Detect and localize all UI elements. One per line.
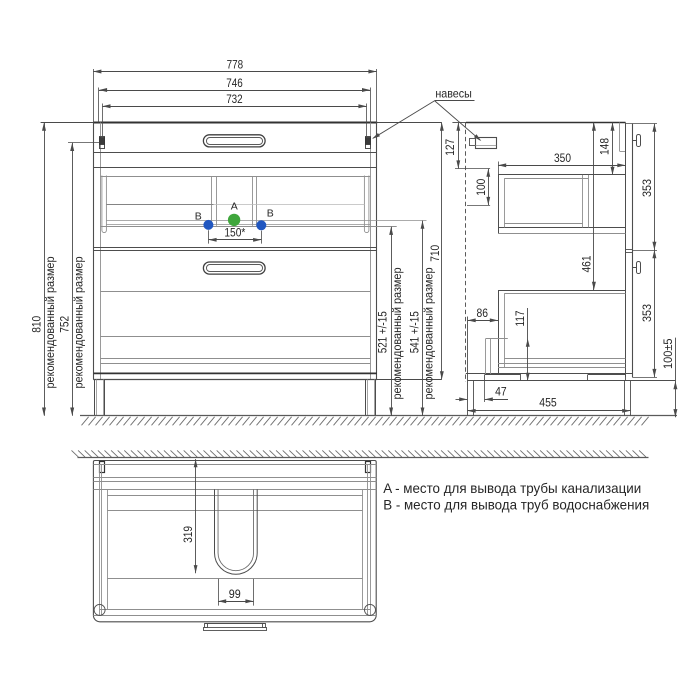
svg-text:319: 319 xyxy=(181,526,195,543)
svg-text:B: B xyxy=(267,207,274,219)
svg-text:B - место для вывода труб водо: B - место для вывода труб водоснабжения xyxy=(383,498,649,513)
svg-text:521 +/-15: 521 +/-15 xyxy=(376,311,390,353)
svg-text:навесы: навесы xyxy=(435,87,472,101)
svg-text:рекомендованный размер: рекомендованный размер xyxy=(391,268,404,400)
svg-text:710: 710 xyxy=(428,245,442,262)
svg-text:461: 461 xyxy=(579,255,593,272)
svg-text:732: 732 xyxy=(226,92,243,106)
svg-text:150*: 150* xyxy=(224,227,245,240)
svg-text:353: 353 xyxy=(640,304,654,322)
svg-text:47: 47 xyxy=(495,384,507,398)
svg-text:86: 86 xyxy=(477,306,489,320)
svg-text:A: A xyxy=(231,200,238,212)
svg-text:99: 99 xyxy=(229,587,241,601)
svg-text:353: 353 xyxy=(640,179,654,197)
svg-text:127: 127 xyxy=(443,139,457,156)
svg-text:148: 148 xyxy=(597,138,611,155)
svg-text:100±5: 100±5 xyxy=(661,338,675,369)
svg-text:A - место для вывода трубы кан: A - место для вывода трубы канализации xyxy=(383,481,641,496)
svg-text:350: 350 xyxy=(554,151,571,165)
svg-text:рекомендованный размер: рекомендованный размер xyxy=(423,267,436,399)
svg-text:117: 117 xyxy=(513,310,527,326)
svg-text:B: B xyxy=(195,211,202,223)
svg-text:541 +/-15: 541 +/-15 xyxy=(408,311,422,353)
svg-text:752: 752 xyxy=(58,316,72,333)
svg-text:778: 778 xyxy=(227,57,244,71)
svg-text:рекомендованный размер: рекомендованный размер xyxy=(73,257,86,389)
svg-text:746: 746 xyxy=(226,76,243,90)
svg-text:рекомендованный размер: рекомендованный размер xyxy=(44,257,57,389)
svg-text:810: 810 xyxy=(29,316,43,333)
svg-text:100: 100 xyxy=(474,179,488,196)
svg-text:455: 455 xyxy=(539,395,557,409)
